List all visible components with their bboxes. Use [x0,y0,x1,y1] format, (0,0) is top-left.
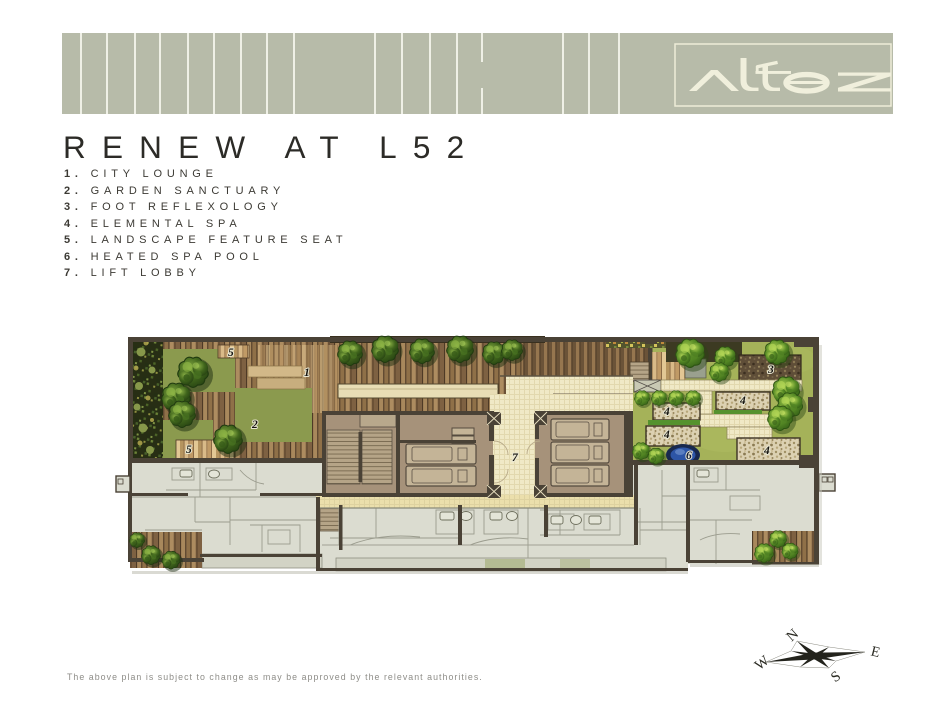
svg-text:1: 1 [304,367,310,379]
svg-text:4: 4 [763,445,770,457]
svg-text:6: 6 [686,450,692,462]
svg-text:W: W [752,653,773,674]
svg-text:4: 4 [663,406,670,418]
svg-text:4: 4 [739,395,746,407]
svg-text:4: 4 [663,429,670,441]
svg-text:3: 3 [767,364,774,376]
svg-text:5: 5 [186,444,192,456]
svg-text:S: S [828,668,844,686]
svg-text:5: 5 [228,347,234,359]
svg-text:2: 2 [251,419,258,431]
svg-text:E: E [869,644,882,662]
svg-text:N: N [783,626,802,645]
